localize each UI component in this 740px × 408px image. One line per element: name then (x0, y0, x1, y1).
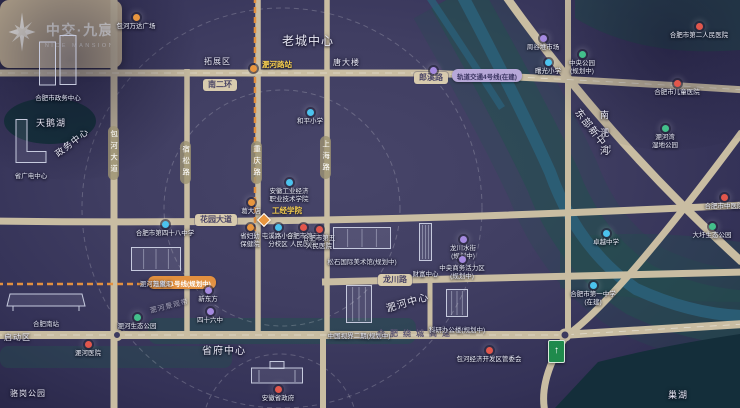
poi-label: 安徽工业经济 职业技术学院 (243, 188, 335, 205)
poi-label: 淝河医院 (42, 350, 134, 358)
school-marker-icon (590, 282, 597, 289)
area-label: 老城中心 (282, 32, 334, 49)
school-marker-icon (603, 230, 610, 237)
park-marker-icon (134, 314, 141, 321)
highway-entrance-sign: ↑ (548, 340, 565, 363)
poi-label: 和平小学 (264, 118, 356, 126)
poi-label: 淝河湾 湿地公园 (619, 134, 711, 151)
culture-marker-icon (540, 35, 547, 42)
culture-marker-icon (207, 308, 214, 315)
vertical-road-label: 上海路 (320, 136, 331, 179)
transit-marker-icon (248, 199, 255, 206)
metro-station-label: 淝河路站 (262, 59, 292, 70)
building-label: 省广电中心 (15, 170, 48, 180)
poi-label: 卓越中学 (560, 239, 652, 247)
culture-marker-icon (460, 236, 467, 243)
area-label: 巢湖 (668, 388, 688, 401)
building-icon (445, 288, 469, 318)
poi-label: 包河万达广场 (90, 23, 182, 31)
park-marker-icon (709, 223, 716, 230)
culture-marker-icon (205, 287, 212, 294)
transit-marker-icon (247, 224, 254, 231)
poi-label: 周谷堆市场 (497, 44, 589, 52)
area-label: 省府中心 (202, 342, 246, 357)
school-marker-icon (162, 221, 169, 228)
area-label: 拓展区 (204, 56, 231, 67)
building-label: 淝河万象汇 (140, 278, 173, 288)
poi-label: 新东方 (162, 296, 254, 304)
building-label: 财富中心 (413, 268, 439, 278)
park-marker-icon (662, 125, 669, 132)
transit-marker-icon (133, 14, 140, 21)
poi-label: 合肥市第一中学 (在建) (547, 291, 639, 308)
building-mall: 松石国际美术馆(规划中) (332, 226, 392, 255)
poi-label: 中央公园 (规划中) (536, 60, 628, 77)
culture-marker-icon (459, 256, 466, 263)
building-label: 合肥市政务中心 (35, 92, 81, 102)
school-marker-icon (286, 179, 293, 186)
hospital-marker-icon (316, 226, 323, 233)
building-label: 中国视界二期(规划中) (328, 330, 391, 340)
building-icon (38, 34, 78, 86)
school-marker-icon (307, 109, 314, 116)
building-tower: 中国视界二期(规划中) (345, 284, 373, 329)
hospital-marker-icon (674, 80, 681, 87)
building-icon (130, 246, 182, 272)
building-tower: 科研办公楼(规划中) (445, 288, 469, 323)
poi-label: 安徽省政府 (232, 395, 324, 403)
hospital-marker-icon (696, 23, 703, 30)
location-map: 老城中心天鹅湖政务中心东部新中心南淝河淝河中心省府中心巢湖启动区骆岗公园淝河景观… (0, 0, 740, 408)
road-name-badge: 龙川路 (378, 274, 412, 286)
area-label: 启动区 (4, 332, 31, 343)
area-label: 唐大楼 (333, 57, 360, 68)
area-label: 南淝河 (598, 110, 611, 164)
building-mall: 淝河万象汇 (130, 246, 182, 277)
poi-label: 葛大店 (205, 208, 297, 216)
building-label: 合肥南站 (33, 318, 59, 328)
poi-label: 合肥市第四十八中学 (119, 230, 211, 238)
road-name-badge: 南二环 (203, 79, 237, 91)
map-overlay: 老城中心天鹅湖政务中心东部新中心南淝河淝河中心省府中心巢湖启动区骆岗公园淝河景观… (0, 0, 740, 408)
area-label: 淝河中心 (384, 288, 430, 315)
hospital-marker-icon (486, 347, 493, 354)
building-icon (418, 222, 433, 262)
building-label: 科研办公楼(规划中) (429, 324, 485, 334)
area-label: 骆岗公园 (10, 388, 46, 399)
hospital-marker-icon (300, 224, 307, 231)
poi-label: 合肥市第二人民医院 (653, 32, 740, 40)
school-marker-icon (275, 224, 282, 231)
culture-marker-icon (430, 67, 437, 74)
poi-label: 淝河生态公园 (91, 323, 183, 331)
building-icon (332, 226, 392, 250)
building-tower: 财富中心 (418, 222, 433, 267)
building-icon (14, 118, 48, 164)
building-gov (250, 360, 304, 389)
building-icon (250, 360, 304, 384)
poi-label: 大圩生态公园 (666, 232, 740, 240)
building-icon (6, 292, 86, 312)
park-marker-icon (579, 51, 586, 58)
poi-label: 合肥市儿童医院 (631, 89, 723, 97)
vertical-road-label: 包河大道 (108, 126, 119, 180)
transit-marker-icon (250, 65, 257, 72)
area-label: 政务中心 (52, 125, 92, 160)
road-name-badge: 郎溪路 (414, 72, 448, 84)
building-towers: 合肥市政务中心 (38, 34, 78, 91)
building-icon (345, 284, 373, 324)
hospital-marker-icon (721, 194, 728, 201)
building-lshape: 省广电中心 (14, 118, 48, 169)
poi-label: 包河经济开发区管委会 (443, 356, 535, 364)
hospital-marker-icon (85, 341, 92, 348)
vertical-road-label: 宿松路 (180, 141, 191, 184)
building-label: 松石国际美术馆(规划中) (327, 256, 396, 266)
poi-label: 合肥市中医院 (678, 203, 740, 211)
building-station: 合肥南站 (6, 292, 86, 317)
vertical-road-label: 重庆路 (251, 141, 262, 184)
